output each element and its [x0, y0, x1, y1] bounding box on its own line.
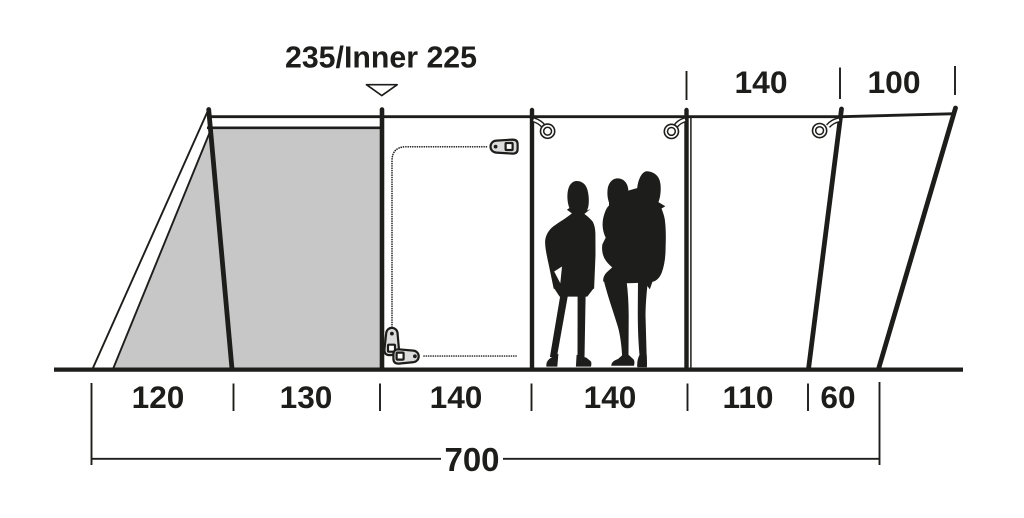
svg-text:100: 100	[867, 64, 920, 100]
svg-text:140: 140	[430, 379, 483, 415]
svg-text:60: 60	[820, 379, 855, 415]
svg-text:140: 140	[584, 379, 637, 415]
svg-text:130: 130	[280, 379, 333, 415]
svg-text:140: 140	[734, 64, 787, 100]
svg-text:110: 110	[723, 379, 774, 415]
svg-text:700: 700	[444, 441, 499, 478]
svg-text:120: 120	[132, 379, 185, 415]
svg-text:235/Inner 225: 235/Inner 225	[285, 42, 477, 75]
